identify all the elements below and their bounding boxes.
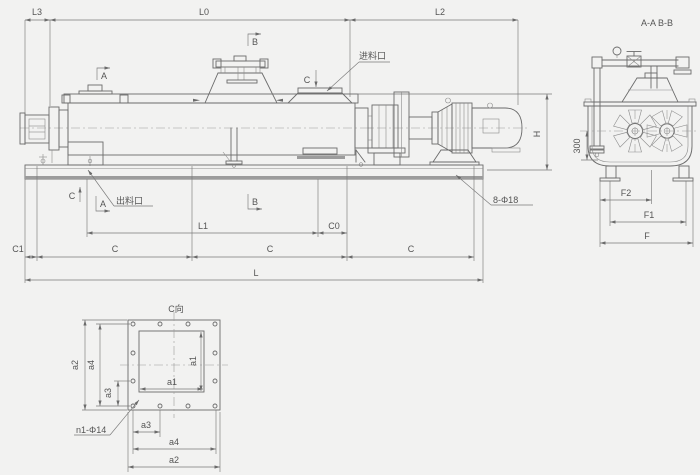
dim-a2: a2: [70, 360, 80, 370]
dim-l3: L3: [32, 7, 42, 17]
section-marker-a: A: [100, 199, 106, 209]
outlet-label: 出料口: [116, 195, 143, 206]
section-marker-c: C: [69, 191, 76, 201]
bottom-dimensions: L1 C0 C1 C C C L: [12, 166, 483, 283]
cover-mark-right: [276, 99, 283, 102]
dim-a3: a3: [141, 420, 151, 430]
left-bearing-assembly: [20, 107, 68, 163]
dim-c0: C0: [328, 221, 340, 231]
cover-clamps: [62, 95, 128, 103]
cover-mark-left: [193, 99, 200, 102]
flange-holes-callout: n1-Φ14: [74, 400, 139, 435]
flange-dimensions: a2 a4 a3 a1 a1 a3 a4 a2: [70, 320, 220, 472]
dim-c: C: [267, 244, 274, 254]
gearbox-pedestal: [433, 150, 476, 162]
section-view-title: A-A B-B: [641, 18, 673, 28]
flange-outline: [120, 312, 228, 418]
pressure-gauge: [613, 47, 621, 55]
lifting-eyebolt: [488, 103, 493, 108]
base-frame: [25, 165, 483, 179]
section-view: A-A B-B: [572, 18, 698, 247]
dim-l0: L0: [199, 7, 209, 17]
outlet-callout: 出料口: [88, 170, 153, 206]
dim-a4: a4: [169, 437, 179, 447]
dim-a2: a2: [169, 455, 179, 465]
dim-l1: L1: [198, 221, 208, 231]
dim-h: H: [532, 131, 542, 138]
bottom-drain-nozzle: [223, 128, 242, 167]
dim-c1: C1: [12, 244, 24, 254]
section-marker-b: B: [252, 197, 258, 207]
flange-holes-label: n1-Φ14: [76, 425, 106, 435]
feed-inlet-nozzle: [288, 88, 352, 103]
dim-a4: a4: [86, 360, 96, 370]
paddle-dryer-ga-drawing: L3 L0 L2 A B C 进料口: [0, 0, 700, 475]
section-legs: [600, 166, 693, 181]
lifting-eyebolt: [446, 98, 451, 103]
manhole-nozzle: [79, 85, 112, 94]
flange-view: C向 a2 a4 a3: [70, 303, 228, 472]
flange-view-title: C向: [168, 303, 184, 314]
dim-c: C: [112, 244, 119, 254]
dome-section: [622, 73, 678, 102]
dim-a1: a1: [188, 356, 198, 366]
base-holes-callout: 8-Φ18: [456, 175, 533, 205]
end-support-bracket: [356, 150, 365, 166]
dim-l: L: [253, 268, 258, 278]
discharge-chute: [68, 142, 103, 166]
dim-l2: L2: [435, 7, 445, 17]
saddle-support: [297, 148, 345, 158]
dim-f2: F2: [621, 188, 632, 198]
engineering-drawing-canvas: L3 L0 L2 A B C 进料口: [0, 0, 700, 475]
section-markers-top: A B C: [97, 34, 316, 87]
inlet-label: 进料口: [359, 50, 386, 61]
dim-f1: F1: [644, 210, 655, 220]
section-marker-c: C: [304, 75, 311, 85]
dim-300: 300: [572, 138, 582, 153]
section-marker-a: A: [101, 71, 107, 81]
vapor-dome: [205, 56, 277, 103]
trough-section: [580, 99, 698, 166]
section-marker-b: B: [252, 37, 258, 47]
top-dimensions: L3 L0 L2: [25, 7, 518, 145]
dim-a3: a3: [103, 388, 113, 398]
inlet-callout: 进料口: [327, 50, 390, 91]
drive-train: [355, 92, 522, 165]
dim-f: F: [644, 231, 650, 241]
dim-a1: a1: [167, 377, 177, 387]
anchor-bolt-left: [39, 154, 47, 165]
dim-c: C: [408, 244, 415, 254]
front-view: L3 L0 L2 A B C 进料口: [12, 7, 552, 283]
base-holes-label: 8-Φ18: [493, 195, 518, 205]
section-markers-bottom: C A B: [69, 187, 262, 211]
